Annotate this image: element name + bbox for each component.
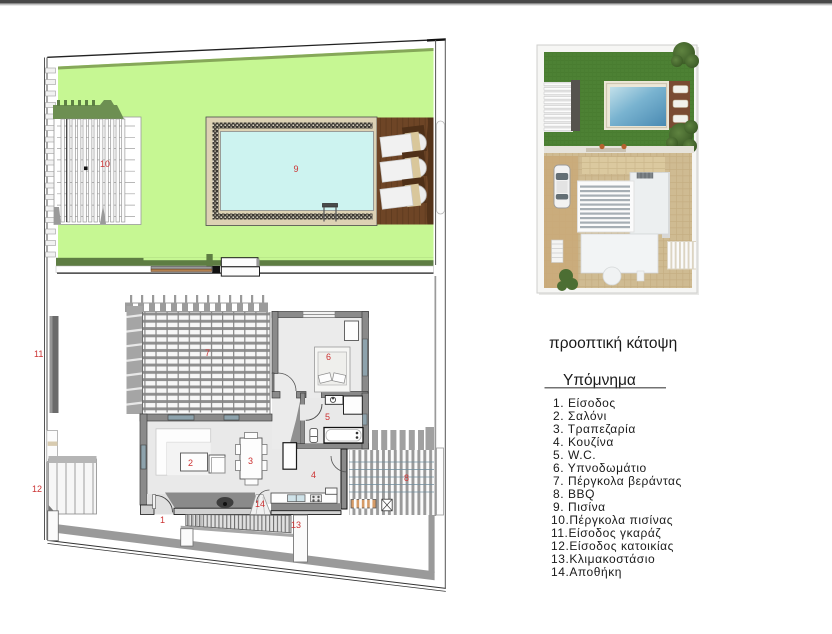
svg-text:13: 13 bbox=[291, 520, 301, 530]
svg-text:10: 10 bbox=[100, 159, 110, 169]
svg-text:8. BBQ: 8. BBQ bbox=[553, 487, 595, 501]
svg-text:7. Πέργκολα βεράντας: 7. Πέργκολα βεράντας bbox=[553, 474, 682, 488]
svg-text:2. Σαλόνι: 2. Σαλόνι bbox=[553, 409, 607, 423]
svg-text:3. Τραπεζαρία: 3. Τραπεζαρία bbox=[553, 422, 636, 436]
svg-text:5: 5 bbox=[325, 412, 330, 422]
svg-text:7: 7 bbox=[205, 348, 210, 358]
svg-text:1. Είσοδος: 1. Είσοδος bbox=[553, 396, 616, 410]
svg-text:6: 6 bbox=[326, 352, 331, 362]
svg-text:14.Αποθήκη: 14.Αποθήκη bbox=[551, 565, 622, 579]
svg-text:1: 1 bbox=[160, 515, 165, 525]
svg-text:Υπόμνημα: Υπόμνημα bbox=[563, 372, 636, 389]
svg-text:11.Είσοδος γκαράζ: 11.Είσοδος γκαράζ bbox=[551, 526, 661, 540]
svg-text:4. Κουζίνα: 4. Κουζίνα bbox=[553, 435, 614, 449]
svg-text:3: 3 bbox=[248, 456, 253, 466]
svg-text:4: 4 bbox=[311, 470, 316, 480]
svg-text:9. Πισίνα: 9. Πισίνα bbox=[553, 500, 606, 514]
svg-text:13.Κλιμακοστάσιο: 13.Κλιμακοστάσιο bbox=[551, 552, 655, 566]
svg-text:12: 12 bbox=[32, 484, 42, 494]
svg-text:12.Είσοδος κατοικίας: 12.Είσοδος κατοικίας bbox=[551, 539, 674, 553]
svg-text:προοπτική κάτοψη: προοπτική κάτοψη bbox=[549, 335, 677, 352]
svg-text:2: 2 bbox=[188, 458, 193, 468]
svg-text:5. W.C.: 5. W.C. bbox=[553, 448, 596, 462]
svg-text:6. Υπνοδωμάτιο: 6. Υπνοδωμάτιο bbox=[553, 461, 647, 475]
svg-text:11: 11 bbox=[34, 349, 43, 359]
svg-text:9: 9 bbox=[294, 164, 299, 174]
svg-text:14: 14 bbox=[255, 499, 265, 509]
svg-text:10.Πέργκολα πισίνας: 10.Πέργκολα πισίνας bbox=[551, 513, 673, 527]
svg-text:8: 8 bbox=[404, 473, 409, 483]
